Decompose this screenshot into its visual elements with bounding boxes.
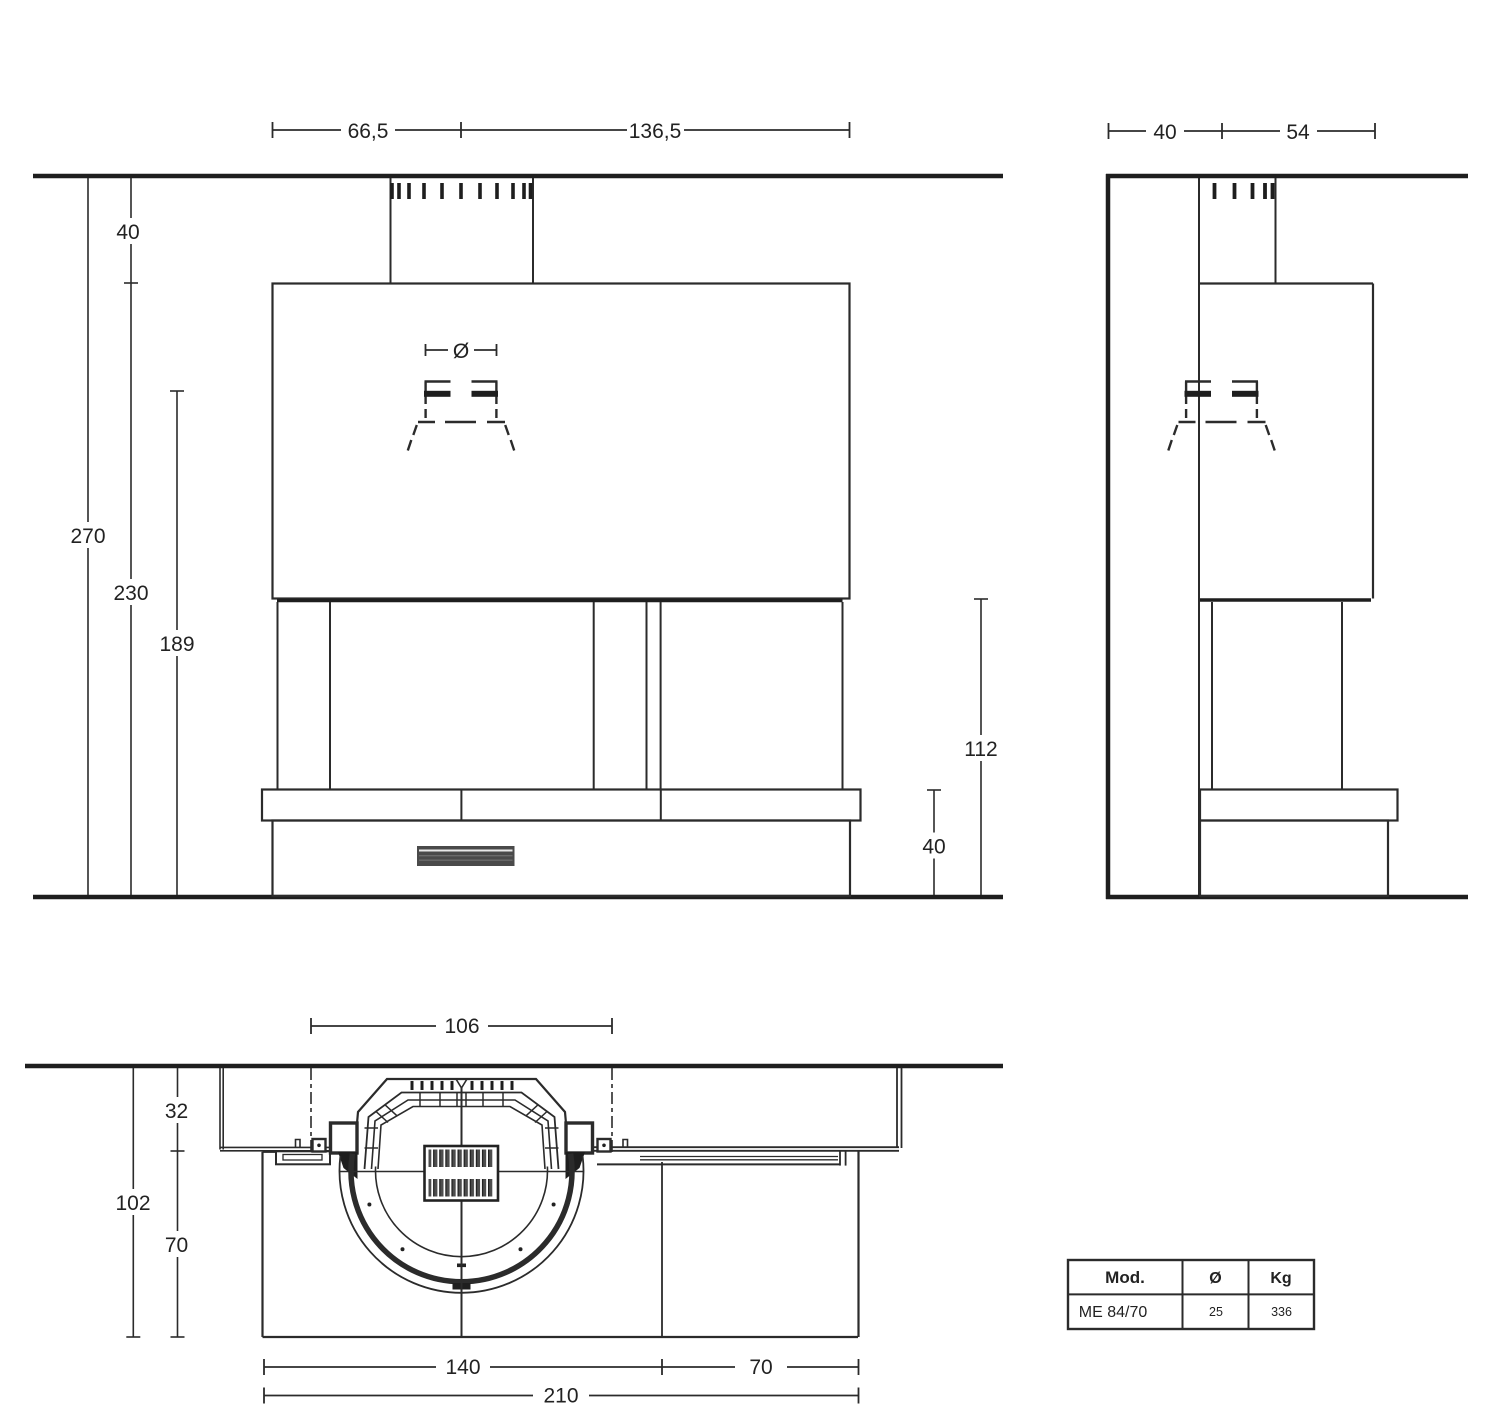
svg-text:40: 40 [116,221,139,244]
svg-text:102: 102 [115,1192,150,1215]
svg-text:140: 140 [445,1356,480,1379]
svg-text:189: 189 [159,633,194,656]
svg-text:70: 70 [749,1356,772,1379]
svg-text:230: 230 [113,582,148,605]
svg-text:270: 270 [70,525,105,548]
svg-text:25: 25 [1209,1305,1223,1319]
svg-text:Ø: Ø [1209,1270,1221,1287]
svg-text:70: 70 [165,1234,188,1257]
svg-text:Mod.: Mod. [1105,1268,1145,1287]
svg-text:ME 84/70: ME 84/70 [1079,1304,1148,1321]
svg-text:Kg: Kg [1270,1270,1291,1287]
svg-text:Ø: Ø [453,340,469,363]
svg-text:40: 40 [1153,121,1176,144]
svg-text:210: 210 [543,1385,578,1408]
svg-text:66,5: 66,5 [348,120,389,143]
svg-text:112: 112 [964,738,997,761]
svg-text:106: 106 [444,1015,479,1038]
svg-text:336: 336 [1271,1305,1292,1319]
svg-text:40: 40 [922,836,945,859]
svg-text:32: 32 [165,1100,188,1123]
svg-text:136,5: 136,5 [629,120,682,143]
svg-text:54: 54 [1286,121,1310,144]
